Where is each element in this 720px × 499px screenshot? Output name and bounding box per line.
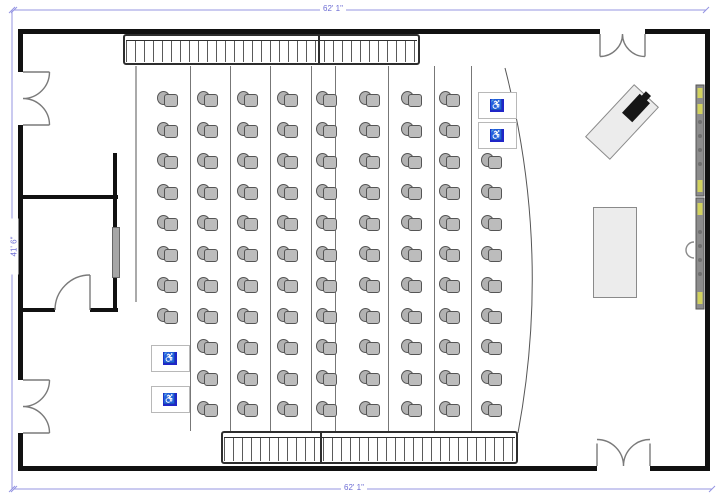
chair xyxy=(277,214,299,234)
chair xyxy=(237,338,259,358)
chair-seat xyxy=(446,156,460,169)
chair xyxy=(277,152,299,172)
chair-seat xyxy=(204,156,218,169)
chair xyxy=(277,245,299,265)
chair xyxy=(197,307,219,327)
chair xyxy=(157,90,179,110)
chair-seat xyxy=(446,373,460,386)
chair xyxy=(359,400,381,420)
bracket xyxy=(698,180,703,192)
chair xyxy=(439,214,461,234)
chair-seat xyxy=(244,342,258,355)
chair-seat xyxy=(284,249,298,262)
left-wall-middle xyxy=(18,125,23,380)
chair-seat xyxy=(366,373,380,386)
chair-seat xyxy=(488,373,502,386)
wall-mounted-panel xyxy=(112,227,120,278)
knob xyxy=(698,272,702,276)
presenter-table xyxy=(593,207,637,298)
wheelchair-space: ♿ xyxy=(478,122,517,149)
knob xyxy=(698,258,702,262)
chair xyxy=(197,183,219,203)
chair xyxy=(401,307,423,327)
chair xyxy=(439,183,461,203)
chair xyxy=(157,276,179,296)
chair xyxy=(481,183,503,203)
chair-seat xyxy=(488,156,502,169)
chair xyxy=(481,214,503,234)
chair xyxy=(439,369,461,389)
chair-seat xyxy=(366,311,380,324)
chair-seat xyxy=(284,156,298,169)
chair xyxy=(277,276,299,296)
chair-seat xyxy=(488,311,502,324)
chair xyxy=(277,121,299,141)
knob xyxy=(698,120,702,124)
chair xyxy=(237,152,259,172)
chair-seat xyxy=(204,280,218,293)
chair-seat xyxy=(244,311,258,324)
chair-seat xyxy=(244,187,258,200)
chair-seat xyxy=(204,373,218,386)
chair-seat xyxy=(408,311,422,324)
chair-seat xyxy=(204,311,218,324)
chair xyxy=(197,276,219,296)
bottom-wall-right-segment xyxy=(650,466,710,471)
chair-seat xyxy=(366,249,380,262)
bottom-wall-left-segment xyxy=(18,466,597,471)
chair-seat xyxy=(408,373,422,386)
chair-seat xyxy=(366,404,380,417)
aisle-divider-line xyxy=(471,66,472,431)
chair xyxy=(401,369,423,389)
chair-seat xyxy=(164,280,178,293)
chair xyxy=(157,307,179,327)
chair xyxy=(277,338,299,358)
chair xyxy=(316,183,338,203)
chair-seat xyxy=(408,218,422,231)
chair xyxy=(237,307,259,327)
chair xyxy=(237,245,259,265)
chair xyxy=(237,183,259,203)
knob xyxy=(698,244,702,248)
chair-seat xyxy=(323,125,337,138)
chair xyxy=(439,307,461,327)
wheelchair-space: ♿ xyxy=(151,345,190,372)
chair-seat xyxy=(446,342,460,355)
chair xyxy=(237,400,259,420)
chair-seat xyxy=(204,342,218,355)
floor-plan-canvas: ♿♿♿♿ 62' 1" 62' 1" 41' 6" xyxy=(0,0,720,499)
chair xyxy=(481,369,503,389)
aisle-divider-line xyxy=(270,66,271,431)
chair xyxy=(316,338,338,358)
chair-seat xyxy=(488,280,502,293)
chair xyxy=(316,121,338,141)
double-door-left-lower-swings xyxy=(23,380,50,433)
chair-seat xyxy=(284,311,298,324)
chair-seat xyxy=(284,280,298,293)
wheelchair-icon: ♿ xyxy=(163,352,177,365)
chair xyxy=(197,90,219,110)
chair-seat xyxy=(323,94,337,107)
bracket xyxy=(698,88,703,98)
wheelchair-space: ♿ xyxy=(151,386,190,413)
chair-seat xyxy=(366,156,380,169)
chair-seat xyxy=(446,311,460,324)
chair-seat xyxy=(323,156,337,169)
chair xyxy=(359,121,381,141)
wall-screen-upper xyxy=(696,85,704,196)
interior-wall-horizontal-lower-left xyxy=(20,308,55,312)
chair xyxy=(197,338,219,358)
chair xyxy=(157,214,179,234)
left-dimension-label: 41' 6" xyxy=(10,219,19,275)
chair xyxy=(316,276,338,296)
knob xyxy=(698,134,702,138)
wheelchair-icon: ♿ xyxy=(490,129,504,142)
interior-wall-horizontal-upper xyxy=(20,195,118,199)
chair-seat xyxy=(323,311,337,324)
chair-seat xyxy=(366,125,380,138)
chair-seat xyxy=(408,94,422,107)
chair-seat xyxy=(488,218,502,231)
chair xyxy=(237,214,259,234)
chair xyxy=(197,121,219,141)
chair xyxy=(316,400,338,420)
chair xyxy=(439,400,461,420)
chair xyxy=(481,307,503,327)
right-wall xyxy=(705,29,710,471)
chair xyxy=(481,276,503,296)
chair-seat xyxy=(204,187,218,200)
chair xyxy=(316,214,338,234)
chair-seat xyxy=(204,218,218,231)
chair xyxy=(401,183,423,203)
left-wall-lower xyxy=(18,433,23,471)
chair xyxy=(316,152,338,172)
chair xyxy=(401,121,423,141)
chair xyxy=(197,152,219,172)
chair-seat xyxy=(284,404,298,417)
chair-seat xyxy=(408,125,422,138)
chair-seat xyxy=(323,404,337,417)
aisle-divider-line xyxy=(190,66,191,431)
wall-screens xyxy=(696,85,704,309)
wheelchair-space: ♿ xyxy=(478,92,517,119)
chair xyxy=(197,214,219,234)
chair-seat xyxy=(323,373,337,386)
chair xyxy=(481,338,503,358)
chair-seat xyxy=(366,342,380,355)
chair-seat xyxy=(244,125,258,138)
chair-seat xyxy=(323,342,337,355)
chair-seat xyxy=(446,187,460,200)
chair-seat xyxy=(244,280,258,293)
chair-seat xyxy=(446,280,460,293)
chair xyxy=(157,121,179,141)
chair-seat xyxy=(488,187,502,200)
chair xyxy=(277,400,299,420)
chair-seat xyxy=(323,280,337,293)
chair-seat xyxy=(244,156,258,169)
chair xyxy=(359,152,381,172)
bracket xyxy=(698,292,703,304)
chair-seat xyxy=(204,94,218,107)
chair xyxy=(401,90,423,110)
chair xyxy=(316,245,338,265)
aisle-divider-line xyxy=(311,66,312,431)
top-wall-right-segment xyxy=(645,29,710,34)
chair xyxy=(197,245,219,265)
chair-seat xyxy=(284,125,298,138)
chair xyxy=(157,183,179,203)
chair-seat xyxy=(366,94,380,107)
stepped-platform-top xyxy=(123,34,420,65)
chair-seat xyxy=(244,249,258,262)
chair xyxy=(277,90,299,110)
chair xyxy=(439,121,461,141)
bottom-dimension-label: 62' 1" xyxy=(341,483,367,492)
chair xyxy=(316,369,338,389)
chair-seat xyxy=(164,156,178,169)
stepped-platform-bottom xyxy=(221,431,518,464)
chair xyxy=(401,245,423,265)
chair xyxy=(157,245,179,265)
interior-door-swing xyxy=(55,275,90,310)
hatch-pattern xyxy=(126,40,417,62)
chair xyxy=(197,400,219,420)
chair-seat xyxy=(323,187,337,200)
chair xyxy=(439,152,461,172)
knob xyxy=(698,162,702,166)
knob xyxy=(698,230,702,234)
chair xyxy=(316,90,338,110)
chair xyxy=(277,183,299,203)
aisle-divider-line xyxy=(230,66,231,431)
chair xyxy=(401,276,423,296)
chair-seat xyxy=(323,218,337,231)
chair xyxy=(277,307,299,327)
chair-seat xyxy=(408,280,422,293)
chair xyxy=(316,307,338,327)
chair xyxy=(237,369,259,389)
chair-seat xyxy=(244,404,258,417)
wall-clock-icon xyxy=(686,242,694,258)
chair-seat xyxy=(488,404,502,417)
chair xyxy=(439,338,461,358)
chair-seat xyxy=(408,342,422,355)
chair xyxy=(439,245,461,265)
hatch-pattern xyxy=(224,437,515,461)
chair-seat xyxy=(446,94,460,107)
chair-seat xyxy=(284,218,298,231)
chair xyxy=(237,121,259,141)
bracket xyxy=(698,203,703,215)
chair-seat xyxy=(408,249,422,262)
wheelchair-icon: ♿ xyxy=(163,393,177,406)
chair-seat xyxy=(164,125,178,138)
chair xyxy=(359,369,381,389)
interior-wall-horizontal-lower-right xyxy=(90,308,118,312)
chair-seat xyxy=(244,94,258,107)
chair-seat xyxy=(488,249,502,262)
chair xyxy=(401,152,423,172)
aisle-divider-line xyxy=(388,66,389,431)
chair-seat xyxy=(164,311,178,324)
chair xyxy=(359,276,381,296)
chair xyxy=(481,152,503,172)
chair-seat xyxy=(366,218,380,231)
chair xyxy=(359,307,381,327)
interior-walls xyxy=(20,153,118,312)
chair-seat xyxy=(164,249,178,262)
chair-seat xyxy=(366,280,380,293)
chair-seat xyxy=(446,404,460,417)
chair-seat xyxy=(408,187,422,200)
chair xyxy=(439,90,461,110)
double-door-left-upper-swings xyxy=(23,72,50,125)
chair-seat xyxy=(204,249,218,262)
chair-seat xyxy=(323,249,337,262)
double-door-bottom-right-swings xyxy=(597,440,650,467)
chair-seat xyxy=(244,373,258,386)
chair xyxy=(237,90,259,110)
chair-seat xyxy=(366,187,380,200)
chair-seat xyxy=(164,187,178,200)
chair xyxy=(359,183,381,203)
chair xyxy=(359,214,381,234)
chair xyxy=(359,245,381,265)
chair xyxy=(277,369,299,389)
chair-seat xyxy=(204,125,218,138)
chair-seat xyxy=(284,187,298,200)
top-dimension-label: 62' 1" xyxy=(320,4,346,13)
chair xyxy=(237,276,259,296)
chair-seat xyxy=(446,218,460,231)
chair xyxy=(439,276,461,296)
chair xyxy=(359,90,381,110)
chair-seat xyxy=(284,342,298,355)
chair xyxy=(401,338,423,358)
chair-seat xyxy=(488,342,502,355)
aisle-divider-line xyxy=(434,66,435,431)
platform-seam xyxy=(318,36,320,63)
chair-seat xyxy=(284,373,298,386)
chair xyxy=(401,400,423,420)
chair-seat xyxy=(408,404,422,417)
chair-seat xyxy=(408,156,422,169)
chair-seat xyxy=(204,404,218,417)
chair xyxy=(197,369,219,389)
chair xyxy=(359,338,381,358)
chair-seat xyxy=(446,249,460,262)
chair xyxy=(481,400,503,420)
wheelchair-icon: ♿ xyxy=(490,99,504,112)
chair-seat xyxy=(244,218,258,231)
chair xyxy=(401,214,423,234)
chair-seat xyxy=(284,94,298,107)
left-wall-upper xyxy=(18,29,23,72)
chair xyxy=(481,245,503,265)
chair-seat xyxy=(164,94,178,107)
chair-seat xyxy=(164,218,178,231)
bracket xyxy=(698,104,703,114)
double-door-top-right-swings xyxy=(600,34,645,57)
knob xyxy=(698,148,702,152)
chair xyxy=(157,152,179,172)
chair-seat xyxy=(446,125,460,138)
platform-seam xyxy=(320,433,322,462)
